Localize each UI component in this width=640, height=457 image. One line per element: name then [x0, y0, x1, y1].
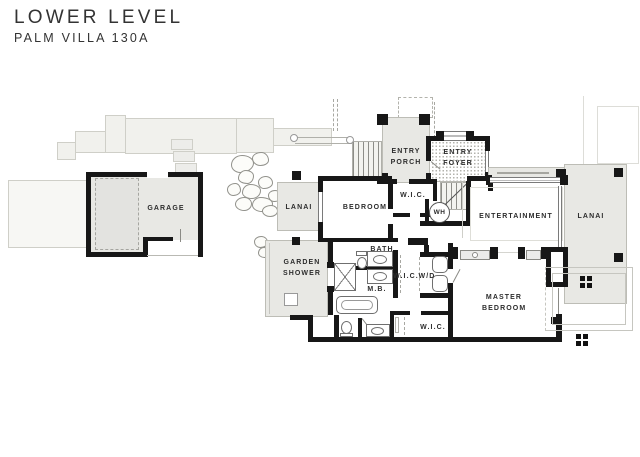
garden-shower-fixture — [284, 293, 298, 306]
wall-post — [490, 247, 498, 259]
room-label-garage: GARAGE — [136, 203, 196, 214]
garden-shower-post — [292, 237, 300, 245]
lanai-post — [292, 171, 301, 180]
wall — [308, 337, 562, 342]
room-label-lanai-left: LANAI — [279, 202, 319, 213]
rock — [238, 170, 254, 184]
lanai-post — [614, 253, 623, 262]
entertainment-edge — [462, 182, 463, 238]
window-post — [436, 131, 444, 141]
sink-fixture — [371, 327, 384, 335]
site-line — [583, 96, 584, 164]
page-subtitle: PALM VILLA 130A — [14, 31, 150, 45]
wall — [388, 179, 397, 184]
room-label-wic-lower: W.I.C. — [413, 322, 453, 333]
rock — [258, 176, 273, 189]
entry-stairs — [352, 141, 382, 178]
deck-grid-post — [576, 334, 588, 346]
planter-wall — [105, 115, 126, 153]
window-crank — [472, 252, 478, 258]
toilet-fixture — [357, 257, 367, 269]
page-title: LOWER LEVEL — [14, 7, 183, 29]
wall-post — [518, 247, 525, 259]
garden-shower-screen — [269, 243, 270, 314]
door-leaf — [453, 269, 461, 283]
water-heater-tank: WH — [429, 202, 450, 223]
planter-wall — [236, 118, 274, 153]
room-label-entertainment: ENTERTAINMENT — [466, 211, 566, 222]
stair-newel — [346, 136, 354, 144]
shower-fixture — [334, 263, 356, 291]
porch-post — [377, 114, 388, 125]
bathtub-basin — [341, 300, 373, 310]
exterior-step — [171, 139, 193, 150]
doorway-line — [498, 252, 520, 253]
garage-parking-pad — [95, 178, 139, 250]
wall — [390, 311, 394, 339]
room-label-washer-dryer: W/D — [412, 271, 442, 282]
garage-door-opening — [147, 172, 168, 178]
nook-edge — [147, 255, 198, 256]
room-label-master-bath: M.B. — [357, 284, 397, 295]
wall — [485, 141, 490, 151]
room-label-lanai-right: LANAI — [561, 211, 621, 222]
wall — [148, 237, 173, 241]
floor-plan: LOWER LEVEL PALM VILLA 130A — [0, 0, 640, 457]
wall — [408, 238, 428, 245]
wall — [308, 315, 313, 341]
wall — [421, 311, 452, 315]
wall — [334, 315, 339, 337]
room-label-master-bedroom: MASTER BEDROOM — [482, 292, 526, 314]
wall — [426, 141, 431, 161]
room-label-bath: BATH — [362, 244, 402, 255]
room-label-entry-foyer: ENTRY FOYER — [438, 147, 478, 169]
window-unit — [526, 250, 541, 260]
planter-wall — [57, 142, 76, 160]
wall — [433, 179, 437, 201]
wall — [143, 237, 148, 257]
closet-rod — [404, 317, 405, 335]
room-label-wic-upper: W.I.C. — [393, 190, 433, 201]
toilet-fixture — [340, 333, 353, 337]
wall — [328, 290, 333, 315]
sink-fixture — [373, 255, 387, 264]
wall — [318, 176, 392, 181]
garden-wall-post — [290, 134, 298, 142]
roof-overhang-line — [434, 102, 435, 138]
wall — [393, 213, 410, 217]
lanai-post — [614, 168, 623, 177]
garden-wall — [295, 137, 352, 144]
beam-line — [497, 172, 549, 174]
sink-fixture — [373, 272, 387, 281]
site-outline — [597, 106, 639, 164]
porch-post — [419, 114, 430, 125]
rock — [262, 205, 278, 217]
wall — [392, 238, 398, 242]
room-label-water-heater: WH — [434, 209, 446, 216]
room-label-bedroom: BEDROOM — [335, 202, 395, 213]
room-label-garden-shower: GARDEN SHOWER — [272, 257, 332, 279]
window — [442, 131, 468, 141]
roof-overhang-line — [333, 99, 334, 131]
rock — [227, 183, 241, 196]
wall — [358, 318, 362, 337]
sliding-door — [490, 177, 564, 183]
rock — [252, 152, 269, 166]
roof-overhang-line — [337, 99, 338, 131]
rock — [235, 197, 252, 211]
exterior-step — [173, 151, 195, 162]
room-label-entry-porch: ENTRY PORCH — [386, 146, 426, 168]
wall — [560, 175, 568, 185]
deck-grid-post — [580, 276, 592, 288]
wall — [420, 293, 452, 298]
door-leaf — [180, 229, 181, 242]
wall — [318, 176, 323, 192]
planter-wall — [75, 131, 106, 153]
driveway — [8, 180, 88, 248]
closet-shelf — [395, 317, 399, 333]
window-post — [466, 131, 474, 141]
